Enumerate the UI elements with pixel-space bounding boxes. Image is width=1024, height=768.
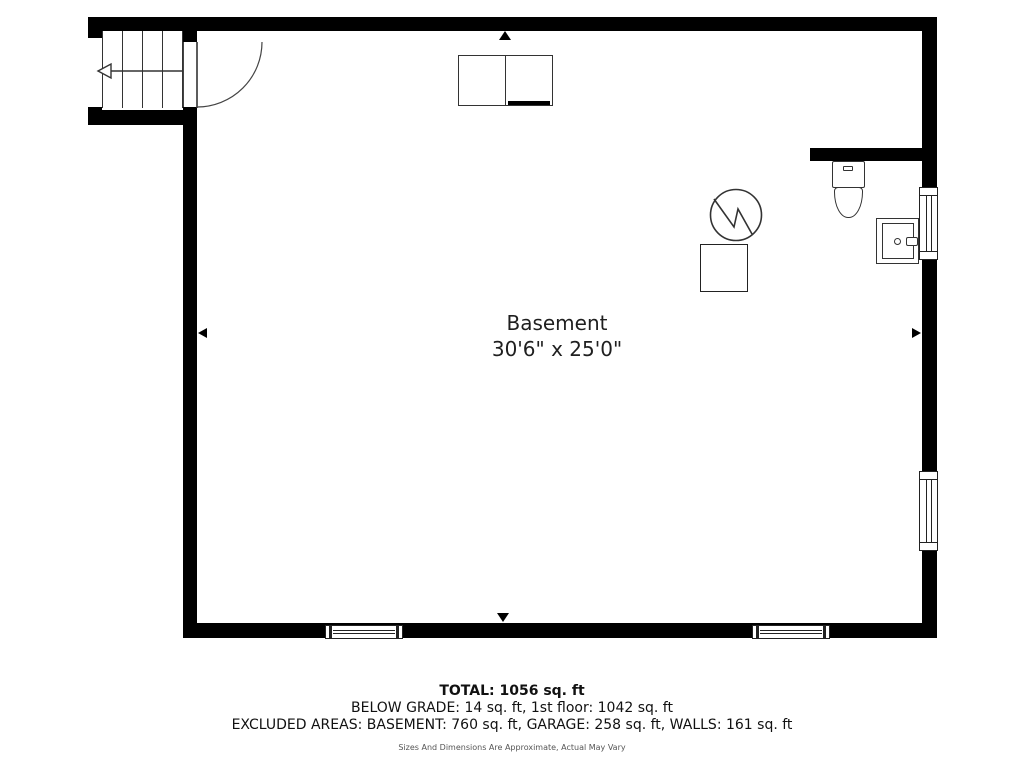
room-dimensions: 30'6" x 25'0" xyxy=(407,336,707,362)
floor-plan-page: Basement 30'6" x 25'0" TOTAL: 1056 sq. f… xyxy=(0,0,1024,768)
disclaimer-text: Sizes And Dimensions Are Approximate, Ac… xyxy=(0,743,1024,752)
door-swing-icon xyxy=(184,42,263,108)
total-area-text: TOTAL: 1056 sq. ft xyxy=(0,683,1024,700)
room-name: Basement xyxy=(407,310,707,336)
area-summary: TOTAL: 1056 sq. ft BELOW GRADE: 14 sq. f… xyxy=(0,683,1024,752)
water-heater-icon xyxy=(711,190,762,241)
below-grade-text: BELOW GRADE: 14 sq. ft, 1st floor: 1042 … xyxy=(0,700,1024,717)
excluded-areas-text: EXCLUDED AREAS: BASEMENT: 760 sq. ft, GA… xyxy=(0,717,1024,734)
room-label: Basement 30'6" x 25'0" xyxy=(407,310,707,362)
stair-direction-arrow-icon xyxy=(98,64,183,78)
floor-plan-linework xyxy=(0,0,1024,768)
